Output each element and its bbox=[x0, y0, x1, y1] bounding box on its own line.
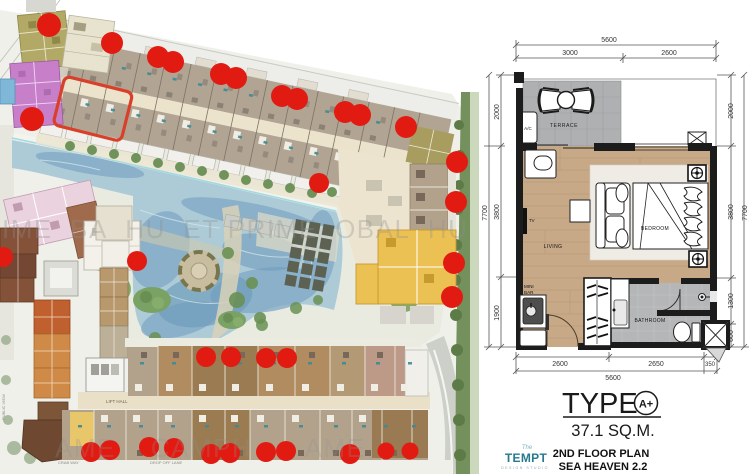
svg-text:A/C: A/C bbox=[524, 126, 532, 131]
svg-text:2650: 2650 bbox=[648, 361, 664, 368]
svg-text:LIVING: LIVING bbox=[544, 244, 563, 250]
svg-text:TV: TV bbox=[529, 218, 535, 223]
svg-text:TERRACE: TERRACE bbox=[550, 123, 578, 129]
svg-text:350: 350 bbox=[705, 362, 716, 368]
svg-text:LIFT HALL: LIFT HALL bbox=[106, 399, 128, 404]
svg-text:5600: 5600 bbox=[601, 37, 617, 44]
svg-text:5600: 5600 bbox=[605, 375, 621, 382]
svg-text:2000: 2000 bbox=[728, 103, 735, 119]
svg-text:A+: A+ bbox=[639, 399, 653, 411]
svg-text:7700: 7700 bbox=[482, 205, 489, 221]
svg-text:PUBLIC VIEW: PUBLIC VIEW bbox=[1, 394, 6, 420]
svg-text:3000: 3000 bbox=[562, 50, 578, 57]
svg-text:2600: 2600 bbox=[552, 361, 568, 368]
svg-text:MINI: MINI bbox=[524, 284, 534, 289]
svg-text:TYPE: TYPE bbox=[562, 388, 638, 420]
svg-text:2000: 2000 bbox=[494, 104, 501, 120]
svg-text:3800: 3800 bbox=[728, 204, 735, 220]
svg-text:SEA HEAVEN 2.2: SEA HEAVEN 2.2 bbox=[559, 461, 648, 473]
svg-text:AME CAMPH AME: AME CAMPH AME bbox=[55, 433, 365, 463]
svg-text:BATHROOM: BATHROOM bbox=[635, 318, 666, 324]
svg-text:BEDROOM: BEDROOM bbox=[641, 226, 669, 232]
svg-text:1300: 1300 bbox=[728, 293, 735, 309]
svg-text:TEMPT: TEMPT bbox=[505, 451, 548, 465]
svg-text:3800: 3800 bbox=[494, 204, 501, 220]
svg-text:37.1 SQ.M.: 37.1 SQ.M. bbox=[571, 422, 654, 440]
svg-text:BAR: BAR bbox=[524, 290, 534, 295]
svg-text:7700: 7700 bbox=[742, 205, 749, 221]
svg-text:1900: 1900 bbox=[494, 305, 501, 321]
svg-text:DESIGN STUDIO: DESIGN STUDIO bbox=[501, 466, 549, 470]
svg-text:2600: 2600 bbox=[661, 50, 677, 57]
svg-text:2ND FLOOR PLAN: 2ND FLOOR PLAN bbox=[553, 448, 650, 460]
